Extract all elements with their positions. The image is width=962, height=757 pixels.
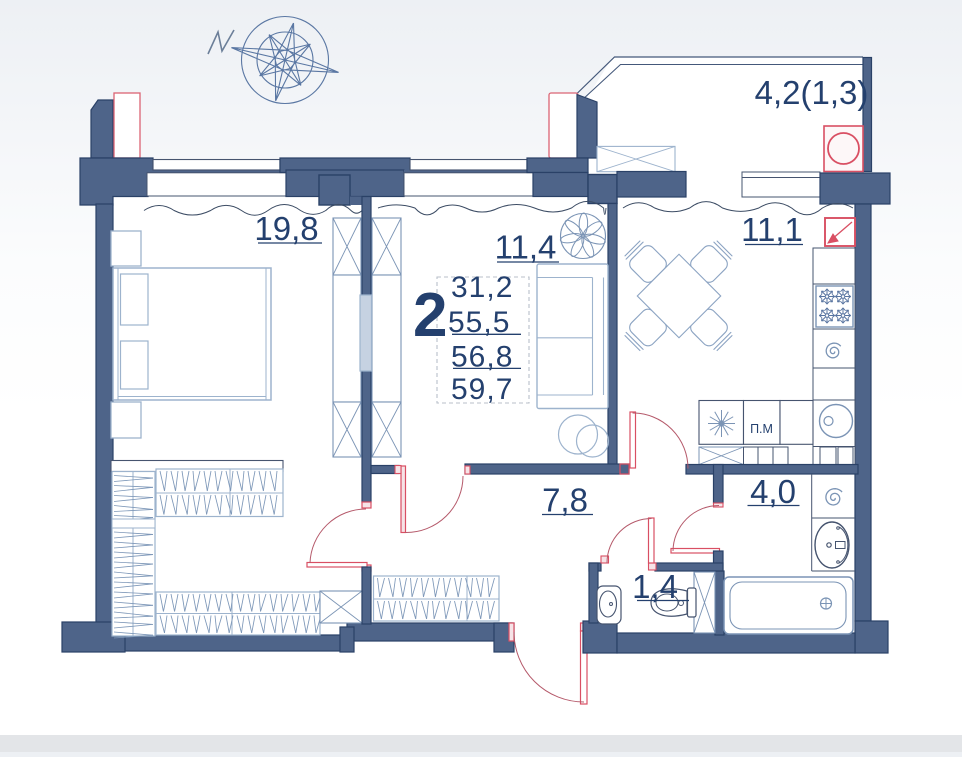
svg-text:4,2(1,3): 4,2(1,3)	[755, 74, 869, 111]
svg-text:1,4: 1,4	[632, 568, 678, 605]
svg-text:4,0: 4,0	[750, 473, 796, 510]
svg-text:19,8: 19,8	[254, 210, 318, 247]
svg-text:11,4: 11,4	[495, 229, 557, 266]
svg-text:2: 2	[413, 281, 447, 350]
svg-text:31,2: 31,2	[451, 271, 513, 304]
svg-text:11,1: 11,1	[741, 211, 803, 248]
svg-text:7,8: 7,8	[542, 482, 588, 519]
svg-text:П.М: П.М	[750, 422, 773, 436]
svg-text:59,7: 59,7	[451, 373, 513, 406]
